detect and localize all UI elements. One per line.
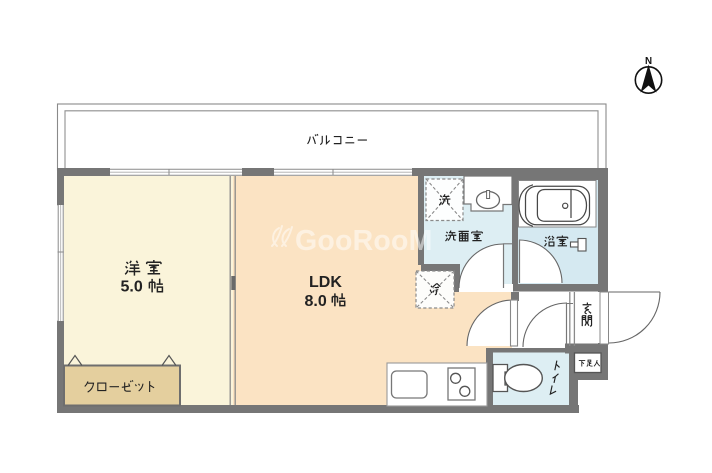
svg-text:N: N [645,56,652,67]
svg-text:LDK: LDK [309,274,342,291]
svg-text:5.0: 5.0 [121,279,143,296]
svg-text:GooRooM: GooRooM [295,225,433,257]
svg-text:8.0: 8.0 [305,293,327,310]
